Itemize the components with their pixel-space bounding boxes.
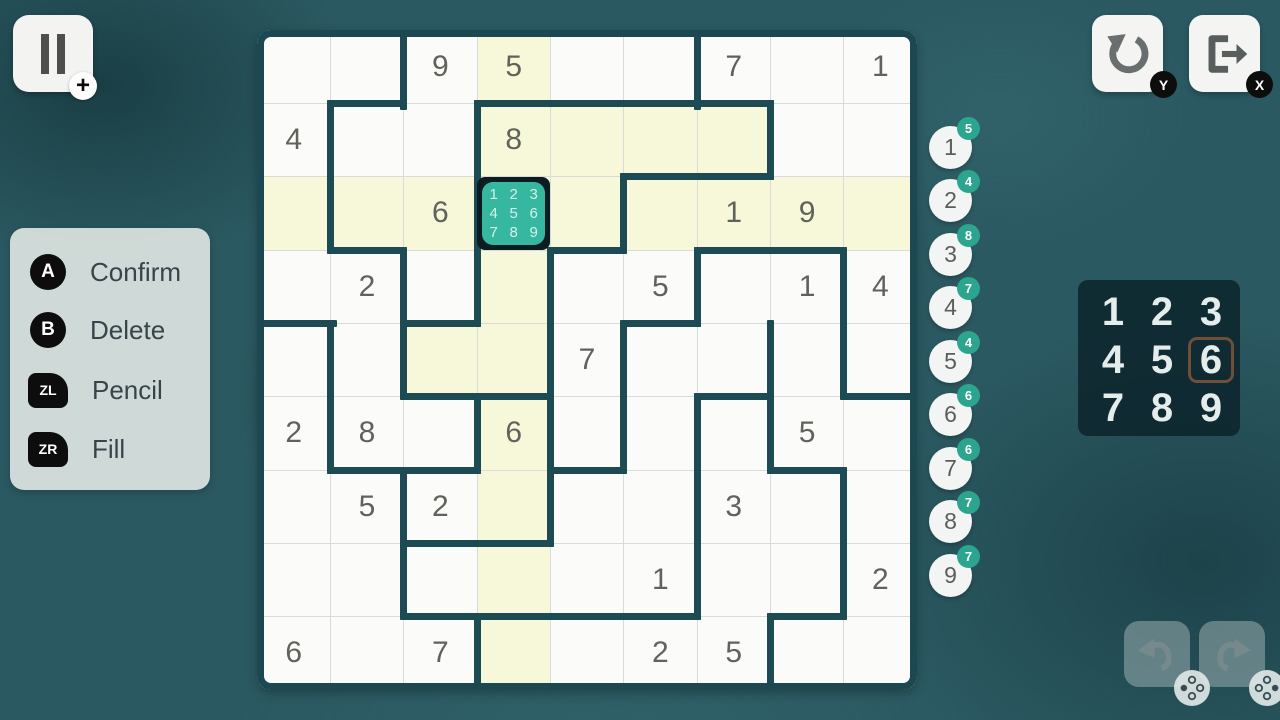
digit-counter-7[interactable]: 76	[929, 447, 972, 490]
board-cell-r6c1[interactable]	[257, 397, 330, 470]
region-border	[400, 320, 480, 327]
legend-label: Confirm	[90, 257, 181, 288]
board-cell-r3c1[interactable]	[257, 177, 330, 250]
counter-remaining-badge: 6	[957, 438, 980, 461]
board-cell-r4c7[interactable]	[697, 250, 770, 323]
legend-label: Delete	[90, 315, 165, 346]
x-key-badge: X	[1246, 71, 1273, 98]
region-border	[694, 393, 774, 400]
region-border	[547, 613, 627, 620]
board-cell-r5c6[interactable]	[624, 323, 697, 396]
board-cell-r8c7[interactable]	[697, 543, 770, 616]
board-cell-r7c9[interactable]	[844, 470, 917, 543]
board-cell-r5c2[interactable]	[330, 323, 403, 396]
number-pad: 123456789	[1078, 280, 1240, 436]
plus-button-badge: +	[69, 72, 97, 100]
board-cell-r7c5[interactable]	[550, 470, 623, 543]
region-border	[694, 540, 701, 620]
board-cell-r3c2[interactable]	[330, 177, 403, 250]
y-key-badge: Y	[1150, 71, 1177, 98]
board-cell-r5c7[interactable]	[697, 323, 770, 396]
board-cell-r7c4[interactable]	[477, 470, 550, 543]
digit-counter-3[interactable]: 38	[929, 233, 972, 276]
board-cell-r9c9[interactable]	[844, 617, 917, 690]
board-cell-r2c9[interactable]	[844, 103, 917, 176]
board-cell-r4c6[interactable]	[624, 250, 697, 323]
counter-digit: 7	[944, 455, 957, 482]
board-cell-r9c6[interactable]	[624, 617, 697, 690]
region-border	[620, 393, 627, 473]
board-cell-r8c6[interactable]	[624, 543, 697, 616]
region-border	[620, 320, 700, 327]
region-border	[694, 173, 774, 180]
counter-digit: 8	[944, 508, 957, 535]
region-border	[400, 320, 407, 400]
counter-remaining-badge: 4	[957, 170, 980, 193]
counter-digit: 6	[944, 401, 957, 428]
region-border	[474, 100, 481, 180]
board-cell-r2c8[interactable]	[770, 103, 843, 176]
digit-counter-5[interactable]: 54	[929, 340, 972, 383]
counter-digit: 4	[944, 294, 957, 321]
region-border	[547, 100, 627, 107]
digit-counter-1[interactable]: 15	[929, 126, 972, 169]
region-border	[327, 393, 334, 473]
board-cell-r2c1[interactable]	[257, 103, 330, 176]
undo-arrow-icon	[1135, 632, 1179, 676]
region-border	[474, 393, 481, 473]
numpad-key-9[interactable]: 9	[1188, 385, 1234, 431]
counter-remaining-badge: 8	[957, 224, 980, 247]
board-cell-r3c5[interactable]	[550, 177, 623, 250]
region-border	[767, 613, 774, 690]
region-border	[474, 393, 554, 400]
region-border	[400, 30, 407, 110]
board-cell-r5c4[interactable]	[477, 323, 550, 396]
region-border	[327, 320, 334, 400]
board-cell-r2c6[interactable]	[624, 103, 697, 176]
board-cell-r5c5[interactable]	[550, 323, 623, 396]
counter-remaining-badge: 7	[957, 491, 980, 514]
board-cell-r5c3[interactable]	[404, 323, 477, 396]
region-border	[547, 393, 554, 473]
region-border	[474, 100, 554, 107]
region-border	[547, 467, 554, 547]
region-border	[547, 247, 554, 327]
board-cell-r7c2[interactable]	[330, 470, 403, 543]
board-cell-r7c8[interactable]	[770, 470, 843, 543]
board-cell-r6c2[interactable]	[330, 397, 403, 470]
counter-remaining-badge: 7	[957, 277, 980, 300]
pencil-mark: 7	[484, 223, 504, 242]
board-cell-r3c7[interactable]	[697, 177, 770, 250]
region-border	[694, 100, 774, 107]
legend-row-delete: B Delete	[10, 308, 210, 352]
board-cell-r1c7[interactable]	[697, 30, 770, 103]
region-border	[767, 320, 774, 400]
board-cell-r8c9[interactable]	[844, 543, 917, 616]
board-cell-r7c6[interactable]	[624, 470, 697, 543]
board-cell-r4c4[interactable]	[477, 250, 550, 323]
counter-digit: 5	[944, 348, 957, 375]
counter-remaining-badge: 5	[957, 117, 980, 140]
region-border	[474, 540, 554, 547]
counter-digit: 3	[944, 241, 957, 268]
region-border	[400, 613, 480, 620]
board-cell-r1c3[interactable]	[404, 30, 477, 103]
board-cell-r1c4[interactable]	[477, 30, 550, 103]
region-border	[474, 613, 481, 690]
board-cell-r4c2[interactable]	[330, 250, 403, 323]
region-border	[840, 393, 917, 400]
region-border	[400, 393, 480, 400]
grid-line	[257, 543, 917, 544]
board-cell-r9c4[interactable]	[477, 617, 550, 690]
region-border	[547, 320, 554, 400]
region-border	[694, 247, 701, 327]
region-border	[400, 540, 480, 547]
board-cell-r9c3[interactable]	[404, 617, 477, 690]
region-border	[840, 247, 847, 327]
board-cell-r1c5[interactable]	[550, 30, 623, 103]
board-cell-r8c1[interactable]	[257, 543, 330, 616]
zl-button-icon: ZL	[28, 373, 68, 408]
board-cell-r6c9[interactable]	[844, 397, 917, 470]
region-border	[474, 247, 481, 327]
pencil-marks: 123456789	[482, 182, 545, 245]
numpad-key-4[interactable]: 4	[1090, 337, 1136, 383]
region-border	[620, 613, 700, 620]
exit-icon	[1202, 31, 1248, 77]
numpad-key-6[interactable]: 6	[1188, 337, 1234, 383]
board-cell-r8c8[interactable]	[770, 543, 843, 616]
region-border	[767, 247, 847, 254]
board-cell-r9c7[interactable]	[697, 617, 770, 690]
numpad-key-5[interactable]: 5	[1139, 337, 1185, 383]
region-border	[327, 247, 407, 254]
board-cell-r2c2[interactable]	[330, 103, 403, 176]
pencil-mark: 2	[504, 185, 524, 204]
b-button-icon: B	[30, 312, 66, 348]
undo-icon	[1105, 31, 1151, 77]
digit-counter-9[interactable]: 97	[929, 554, 972, 597]
region-border	[767, 467, 847, 474]
region-border	[694, 467, 701, 547]
pencil-mark: 9	[524, 223, 544, 242]
board-cell-r2c5[interactable]	[550, 103, 623, 176]
board-cell-r8c2[interactable]	[330, 543, 403, 616]
sudoku-board: 957148619251472865523126725 123456789	[257, 30, 917, 690]
counter-digit: 2	[944, 187, 957, 214]
board-cell-r2c3[interactable]	[404, 103, 477, 176]
board-cell-r6c4[interactable]	[477, 397, 550, 470]
board-cell-r5c9[interactable]	[844, 323, 917, 396]
region-border	[694, 247, 774, 254]
pencil-mark: 4	[484, 204, 504, 223]
region-border	[840, 540, 847, 620]
digit-counter-4[interactable]: 47	[929, 286, 972, 329]
region-border	[400, 467, 480, 474]
grid-line	[257, 396, 917, 397]
board-cell-r4c3[interactable]	[404, 250, 477, 323]
numpad-key-8[interactable]: 8	[1139, 385, 1185, 431]
board-cell-r8c3[interactable]	[404, 543, 477, 616]
region-border	[767, 393, 774, 473]
board-cell-r6c7[interactable]	[697, 397, 770, 470]
region-border	[327, 467, 407, 474]
board-cell-r9c2[interactable]	[330, 617, 403, 690]
region-border	[257, 320, 337, 327]
region-border	[327, 100, 407, 107]
board-cell-r7c7[interactable]	[697, 470, 770, 543]
pencil-mark: 3	[524, 185, 544, 204]
redo-arrow-icon	[1210, 632, 1254, 676]
pause-icon	[57, 34, 65, 74]
grid-line	[257, 176, 917, 177]
board-cell-r9c5[interactable]	[550, 617, 623, 690]
pencil-mark: 6	[524, 204, 544, 223]
legend-row-confirm: A Confirm	[10, 250, 210, 294]
board-cell-r2c4[interactable]	[477, 103, 550, 176]
legend-label: Fill	[92, 434, 125, 465]
selected-cell[interactable]: 123456789	[477, 177, 550, 250]
numpad-key-1[interactable]: 1	[1090, 289, 1136, 335]
board-cell-r9c8[interactable]	[770, 617, 843, 690]
board-cell-r1c8[interactable]	[770, 30, 843, 103]
region-border	[620, 173, 627, 253]
region-border	[620, 100, 700, 107]
region-border	[840, 467, 847, 547]
region-border	[547, 247, 627, 254]
board-cell-r5c8[interactable]	[770, 323, 843, 396]
controls-legend: A Confirm B Delete ZL Pencil ZR Fill	[10, 228, 210, 490]
region-border	[767, 100, 774, 180]
board-cell-r6c5[interactable]	[550, 397, 623, 470]
region-border	[694, 393, 701, 473]
a-button-icon: A	[30, 254, 66, 290]
board-cell-r4c8[interactable]	[770, 250, 843, 323]
board-cell-r4c9[interactable]	[844, 250, 917, 323]
board-cell-r3c9[interactable]	[844, 177, 917, 250]
pencil-mark: 8	[504, 223, 524, 242]
controller-cluster-icon	[1249, 670, 1280, 706]
board-cell-r9c1[interactable]	[257, 617, 330, 690]
zr-button-icon: ZR	[28, 432, 68, 467]
digit-counter-6[interactable]: 66	[929, 393, 972, 436]
board-cell-r8c4[interactable]	[477, 543, 550, 616]
region-border	[620, 173, 700, 180]
region-border	[767, 613, 847, 620]
digit-counter-8[interactable]: 87	[929, 500, 972, 543]
legend-row-fill: ZR Fill	[10, 427, 210, 471]
board-cell-r7c3[interactable]	[404, 470, 477, 543]
board-cell-r5c1[interactable]	[257, 323, 330, 396]
board-cell-r1c2[interactable]	[330, 30, 403, 103]
board-cell-r2c7[interactable]	[697, 103, 770, 176]
board-cell-r1c9[interactable]	[844, 30, 917, 103]
legend-label: Pencil	[92, 375, 163, 406]
counter-digit: 1	[944, 134, 957, 161]
pencil-mark: 1	[484, 185, 504, 204]
digit-counter-2[interactable]: 24	[929, 179, 972, 222]
board-cell-r8c5[interactable]	[550, 543, 623, 616]
region-border	[840, 320, 847, 400]
counter-remaining-badge: 7	[957, 545, 980, 568]
board-cell-r6c6[interactable]	[624, 397, 697, 470]
pencil-mark: 5	[504, 204, 524, 223]
region-border	[694, 30, 701, 110]
legend-row-pencil: ZL Pencil	[10, 368, 210, 412]
region-border	[400, 247, 407, 327]
pause-icon	[41, 34, 49, 74]
region-border	[400, 467, 407, 547]
controller-cluster-icon	[1174, 670, 1210, 706]
counter-remaining-badge: 4	[957, 331, 980, 354]
board-cell-r3c3[interactable]	[404, 177, 477, 250]
board-cell-r3c6[interactable]	[624, 177, 697, 250]
board-cell-r4c5[interactable]	[550, 250, 623, 323]
board-cell-r6c3[interactable]	[404, 397, 477, 470]
board-cell-r3c8[interactable]	[770, 177, 843, 250]
board-cell-r1c1[interactable]	[257, 30, 330, 103]
grid-line	[257, 323, 917, 324]
board-cell-r6c8[interactable]	[770, 397, 843, 470]
region-border	[474, 613, 554, 620]
board-cell-r1c6[interactable]	[624, 30, 697, 103]
counter-remaining-badge: 6	[957, 384, 980, 407]
numpad-key-3[interactable]: 3	[1188, 289, 1234, 335]
region-border	[620, 320, 627, 400]
region-border	[327, 100, 334, 180]
region-border	[400, 540, 407, 620]
board-cell-r4c1[interactable]	[257, 250, 330, 323]
region-border	[547, 467, 627, 474]
counter-digit: 9	[944, 562, 957, 589]
numpad-key-2[interactable]: 2	[1139, 289, 1185, 335]
board-cell-r7c1[interactable]	[257, 470, 330, 543]
region-border	[327, 173, 334, 253]
numpad-key-7[interactable]: 7	[1090, 385, 1136, 431]
